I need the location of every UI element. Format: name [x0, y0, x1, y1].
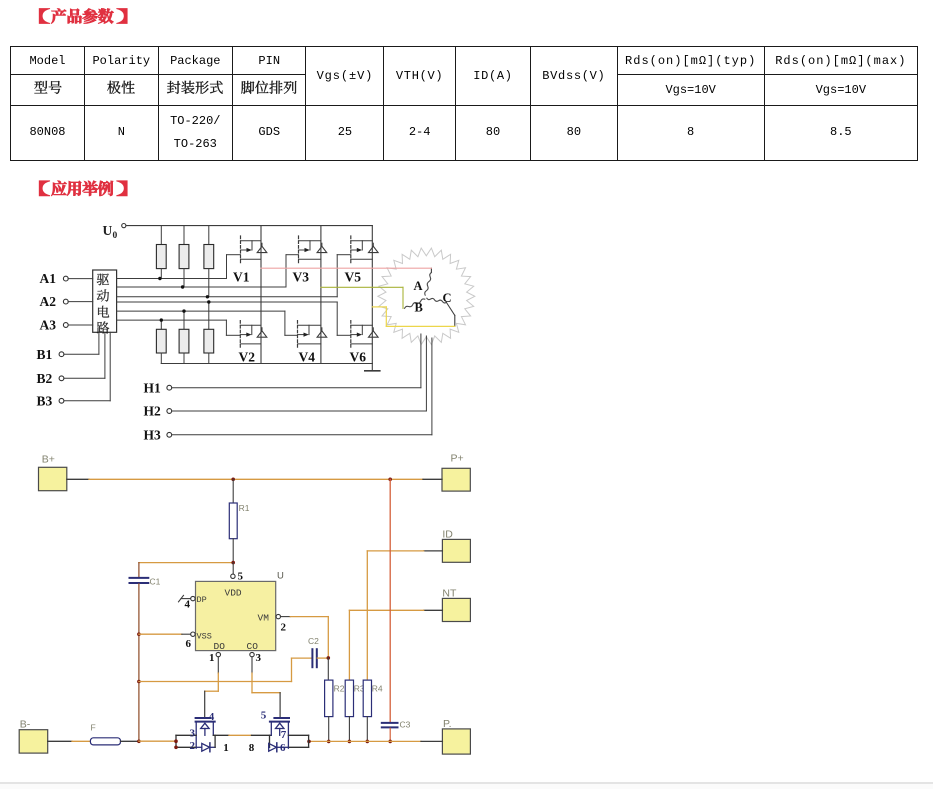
svg-text:A2: A2: [40, 294, 57, 309]
svg-text:VSS: VSS: [197, 632, 212, 642]
svg-text:H3: H3: [144, 427, 162, 442]
svg-text:VM: VM: [258, 613, 270, 624]
svg-text:VDD: VDD: [225, 588, 242, 599]
svg-text:R2: R2: [334, 684, 345, 694]
svg-text:4: 4: [185, 599, 191, 611]
svg-text:U: U: [277, 571, 284, 582]
svg-text:3: 3: [256, 652, 262, 664]
svg-text:ID: ID: [442, 529, 453, 541]
svg-text:B: B: [415, 301, 423, 315]
svg-text:C2: C2: [308, 636, 319, 646]
svg-text:6: 6: [186, 638, 192, 650]
svg-text:B1: B1: [37, 347, 53, 362]
svg-text:8: 8: [249, 742, 255, 754]
svg-text:C3: C3: [400, 720, 411, 730]
svg-text:DO: DO: [214, 641, 226, 652]
svg-text:DP: DP: [197, 595, 207, 605]
svg-text:7: 7: [281, 729, 287, 741]
svg-text:C: C: [443, 291, 452, 305]
svg-text:2: 2: [190, 740, 196, 752]
svg-text:B-: B-: [20, 719, 31, 731]
svg-text:1: 1: [223, 742, 229, 754]
svg-text:3: 3: [190, 728, 196, 740]
svg-text:B2: B2: [37, 371, 53, 386]
svg-text:A1: A1: [40, 271, 57, 286]
svg-text:CO: CO: [247, 641, 259, 652]
svg-text:C1: C1: [150, 577, 161, 587]
svg-text:B+: B+: [42, 454, 55, 466]
svg-text:H1: H1: [144, 380, 162, 395]
svg-text:U: U: [103, 223, 113, 238]
svg-text:P+: P+: [451, 453, 464, 465]
svg-text:A: A: [414, 279, 423, 293]
svg-text:A3: A3: [40, 318, 57, 333]
svg-text:V1: V1: [233, 270, 250, 285]
svg-text:5: 5: [261, 710, 267, 722]
svg-text:R4: R4: [372, 684, 383, 694]
svg-text:P.: P.: [443, 718, 452, 730]
svg-text:V3: V3: [293, 270, 310, 285]
svg-text:1: 1: [209, 652, 215, 664]
svg-text:NT: NT: [442, 588, 457, 600]
svg-text:6: 6: [280, 742, 286, 754]
svg-text:V6: V6: [350, 350, 367, 365]
svg-text:B3: B3: [37, 393, 53, 408]
svg-text:V4: V4: [299, 350, 316, 365]
svg-text:0: 0: [113, 231, 118, 241]
svg-text:V2: V2: [239, 350, 256, 365]
svg-text:R1: R1: [239, 503, 250, 513]
svg-text:F: F: [91, 723, 96, 733]
svg-text:V5: V5: [345, 270, 362, 285]
svg-text:5: 5: [238, 571, 244, 583]
svg-text:H2: H2: [144, 404, 162, 419]
svg-text:2: 2: [281, 622, 287, 634]
